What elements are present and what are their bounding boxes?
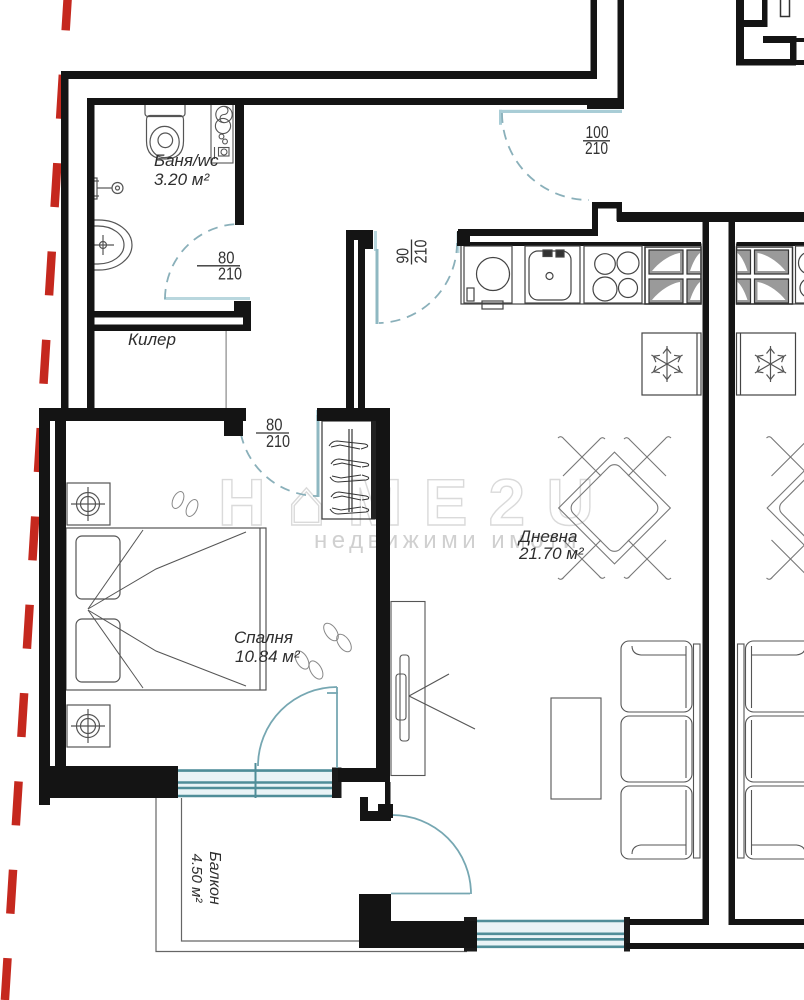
svg-text:Баня/wc: Баня/wc xyxy=(154,151,219,170)
svg-text:210: 210 xyxy=(585,138,608,158)
svg-text:3.20 м²: 3.20 м² xyxy=(154,170,210,189)
svg-text:4.50 м²: 4.50 м² xyxy=(188,854,205,904)
svg-text:Килер: Килер xyxy=(128,330,176,349)
svg-text:210: 210 xyxy=(266,431,290,451)
svg-text:90: 90 xyxy=(393,248,413,264)
svg-text:210: 210 xyxy=(218,264,242,284)
svg-text:10.84 м²: 10.84 м² xyxy=(235,647,301,666)
svg-text:21.70 м²: 21.70 м² xyxy=(518,544,585,563)
svg-text:Балкон: Балкон xyxy=(206,851,223,905)
svg-text:210: 210 xyxy=(411,239,431,263)
svg-text:Спалня: Спалня xyxy=(234,628,293,647)
